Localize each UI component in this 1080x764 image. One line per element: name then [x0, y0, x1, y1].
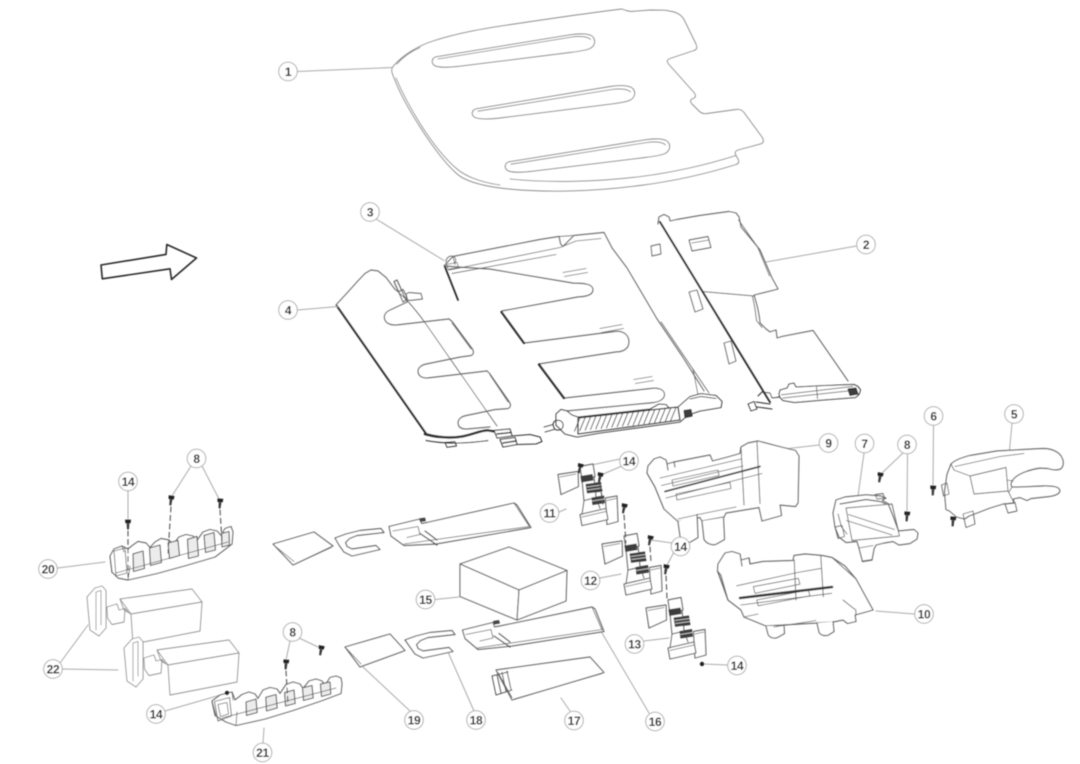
svg-text:14: 14	[674, 540, 687, 554]
svg-text:21: 21	[256, 746, 269, 760]
svg-text:7: 7	[861, 437, 868, 451]
svg-text:8: 8	[193, 452, 200, 466]
svg-text:5: 5	[1011, 408, 1018, 422]
svg-text:11: 11	[543, 507, 556, 521]
svg-text:3: 3	[367, 206, 374, 220]
svg-text:1: 1	[285, 65, 292, 79]
svg-text:8: 8	[904, 438, 911, 452]
svg-text:10: 10	[918, 608, 931, 622]
svg-text:22: 22	[47, 663, 60, 677]
svg-text:14: 14	[150, 708, 163, 722]
svg-text:18: 18	[470, 714, 483, 728]
svg-text:17: 17	[568, 714, 581, 728]
svg-text:16: 16	[649, 715, 662, 729]
svg-text:20: 20	[42, 563, 55, 577]
svg-text:6: 6	[930, 410, 937, 424]
svg-text:19: 19	[408, 714, 421, 728]
svg-text:13: 13	[628, 638, 641, 652]
svg-text:15: 15	[419, 593, 432, 607]
svg-text:2: 2	[863, 238, 870, 252]
svg-text:14: 14	[623, 455, 636, 469]
svg-text:4: 4	[285, 304, 292, 318]
svg-text:9: 9	[825, 437, 832, 451]
svg-text:14: 14	[122, 475, 135, 489]
svg-text:8: 8	[289, 626, 296, 640]
svg-text:14: 14	[731, 659, 744, 673]
svg-text:12: 12	[584, 574, 597, 588]
